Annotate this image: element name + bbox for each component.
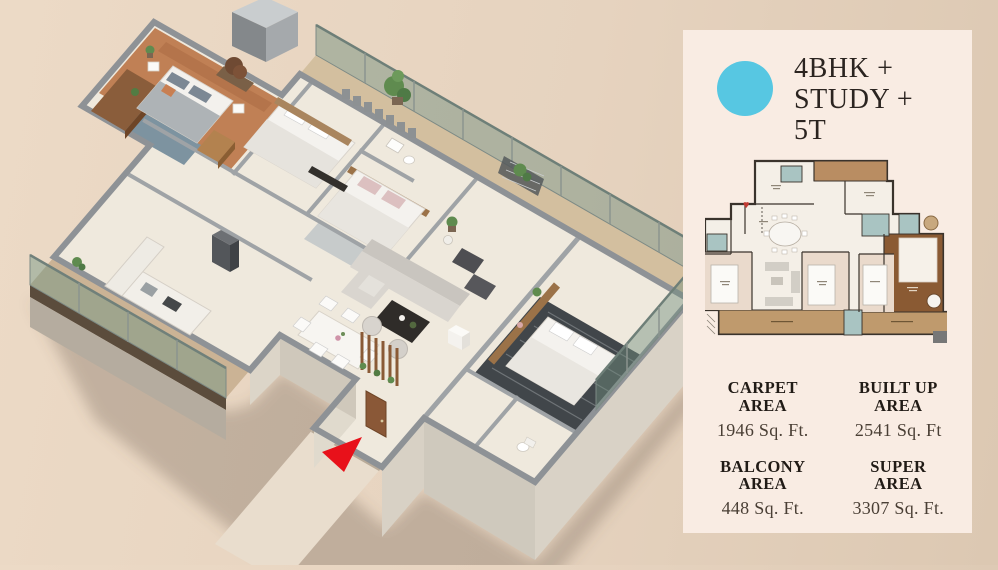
floorplan-3d-svg (0, 0, 710, 565)
unit-title-line: 5T (794, 116, 913, 147)
info-panel: 4BHK + STUDY + 5T (683, 30, 972, 533)
unit-title: 4BHK + STUDY + 5T (794, 54, 913, 146)
stat-value: 2541 Sq. Ft (831, 420, 967, 441)
stat-value: 448 Sq. Ft. (695, 498, 831, 519)
stat-label-line: AREA (831, 475, 967, 493)
panel-header: 4BHK + STUDY + 5T (717, 54, 962, 146)
stat-label-line: BUILT UP (831, 379, 967, 397)
floorplan-3d-render (0, 0, 710, 565)
keyplan-hatch (707, 314, 715, 334)
stat-label-line: AREA (695, 475, 831, 493)
mini-keyplan-svg (705, 159, 947, 345)
stat-builtup-area: BUILT UP AREA 2541 Sq. Ft (831, 379, 967, 441)
accent-circle-icon (717, 61, 773, 116)
stat-carpet-area: CARPET AREA 1946 Sq. Ft. (695, 379, 831, 441)
mini-keyplan (705, 159, 947, 350)
stat-super-area: SUPER AREA 3307 Sq. Ft. (831, 458, 967, 520)
stat-label: BALCONY AREA (695, 458, 831, 494)
stat-label-line: BALCONY (695, 458, 831, 476)
stat-label: BUILT UP AREA (831, 379, 967, 415)
stat-value: 1946 Sq. Ft. (695, 420, 831, 441)
unit-title-line: 4BHK + (794, 54, 913, 85)
stat-label-line: CARPET (695, 379, 831, 397)
stat-balcony-area: BALCONY AREA 448 Sq. Ft. (695, 458, 831, 520)
area-stats: CARPET AREA 1946 Sq. Ft. BUILT UP AREA 2… (695, 379, 966, 519)
service-tower (232, 0, 298, 62)
stat-label: SUPER AREA (831, 458, 967, 494)
stat-label: CARPET AREA (695, 379, 831, 415)
stat-value: 3307 Sq. Ft. (831, 498, 967, 519)
stat-label-line: SUPER (831, 458, 967, 476)
unit-title-line: STUDY + (794, 85, 913, 116)
page: { "colors": { "page-bg-left": "#ecdac6",… (0, 0, 998, 565)
stat-label-line: AREA (695, 397, 831, 415)
stat-label-line: AREA (831, 397, 967, 415)
